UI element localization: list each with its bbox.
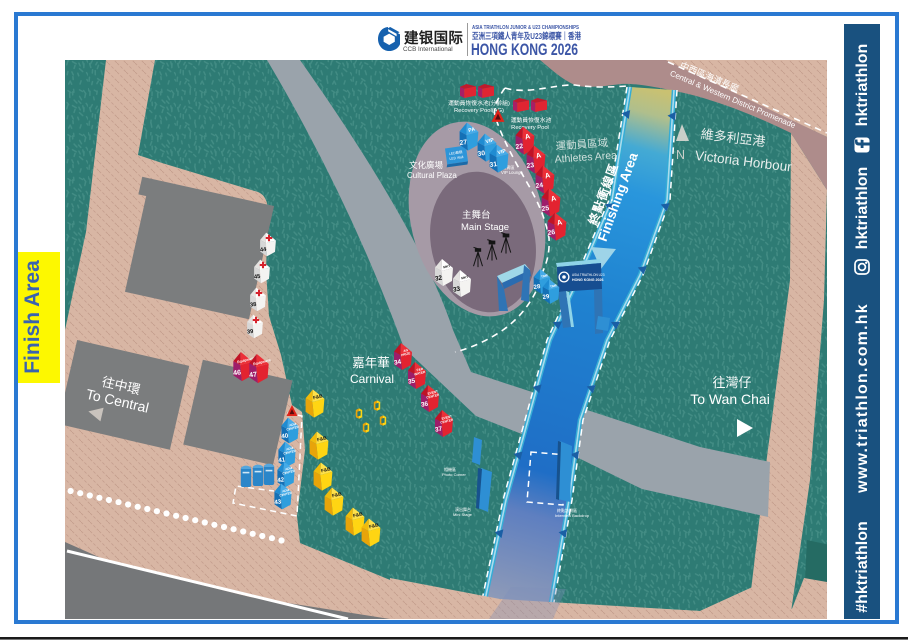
svg-text:亞洲三項鐵人青年及U23錦標賽｜香港: 亞洲三項鐵人青年及U23錦標賽｜香港 [472, 31, 581, 41]
svg-text:VIP Lounge: VIP Lounge [501, 170, 523, 175]
svg-text:Cultural Plaza: Cultural Plaza [407, 171, 457, 180]
svg-text:24: 24 [535, 182, 544, 190]
svg-text:37: 37 [435, 426, 444, 434]
svg-text:46: 46 [233, 369, 242, 377]
svg-text:運動員恢復水池(分齡組): 運動員恢復水池(分齡組) [448, 99, 510, 107]
svg-text:#hktriathlon: #hktriathlon [854, 521, 871, 613]
svg-text:Recovery Pool: Recovery Pool [511, 125, 549, 131]
svg-text:To Wan Chai: To Wan Chai [690, 391, 770, 407]
svg-text:26: 26 [547, 229, 556, 237]
svg-text:31: 31 [489, 161, 498, 169]
svg-text:47: 47 [249, 371, 258, 379]
svg-text:N: N [676, 148, 685, 162]
svg-text:往灣仔: 往灣仔 [712, 375, 751, 390]
svg-text:HONG KONG 2026: HONG KONG 2026 [572, 278, 604, 282]
svg-text:Photo Corner: Photo Corner [442, 472, 466, 477]
svg-text:22: 22 [515, 143, 524, 151]
svg-text:Interview Backdrop: Interview Backdrop [555, 513, 590, 518]
svg-text:建银国际: 建银国际 [404, 29, 463, 47]
svg-text:主舞台: 主舞台 [462, 209, 491, 221]
svg-text:Mini Stage: Mini Stage [453, 512, 473, 517]
svg-text:25: 25 [541, 205, 550, 213]
svg-text:23: 23 [526, 162, 535, 170]
svg-text:ASIA TRIATHLON U23: ASIA TRIATHLON U23 [572, 273, 605, 277]
svg-text:34: 34 [394, 359, 403, 367]
svg-text:30: 30 [477, 150, 486, 158]
svg-text:Carnival: Carnival [350, 372, 394, 386]
svg-text:33: 33 [453, 286, 462, 294]
svg-text:32: 32 [435, 275, 444, 283]
svg-text:運動員恢復水池: 運動員恢復水池 [511, 116, 552, 124]
svg-text:35: 35 [408, 378, 417, 386]
svg-text:hktriathlon: hktriathlon [854, 167, 871, 250]
svg-text:文化廣場: 文化廣場 [409, 160, 444, 170]
svg-text:CCB International: CCB International [403, 46, 453, 53]
svg-text:Finish Area: Finish Area [21, 260, 44, 374]
svg-text:Main Stage: Main Stage [461, 222, 509, 233]
svg-text:39: 39 [247, 329, 254, 336]
svg-text:嘉年華: 嘉年華 [352, 356, 390, 370]
svg-text:www.triathlon.com.hk: www.triathlon.com.hk [854, 303, 871, 494]
svg-text:27: 27 [459, 139, 468, 147]
svg-text:hktriathlon: hktriathlon [854, 44, 871, 127]
svg-text:HONG KONG 2026: HONG KONG 2026 [471, 41, 578, 59]
svg-text:36: 36 [421, 401, 430, 409]
svg-text:38: 38 [250, 302, 257, 309]
